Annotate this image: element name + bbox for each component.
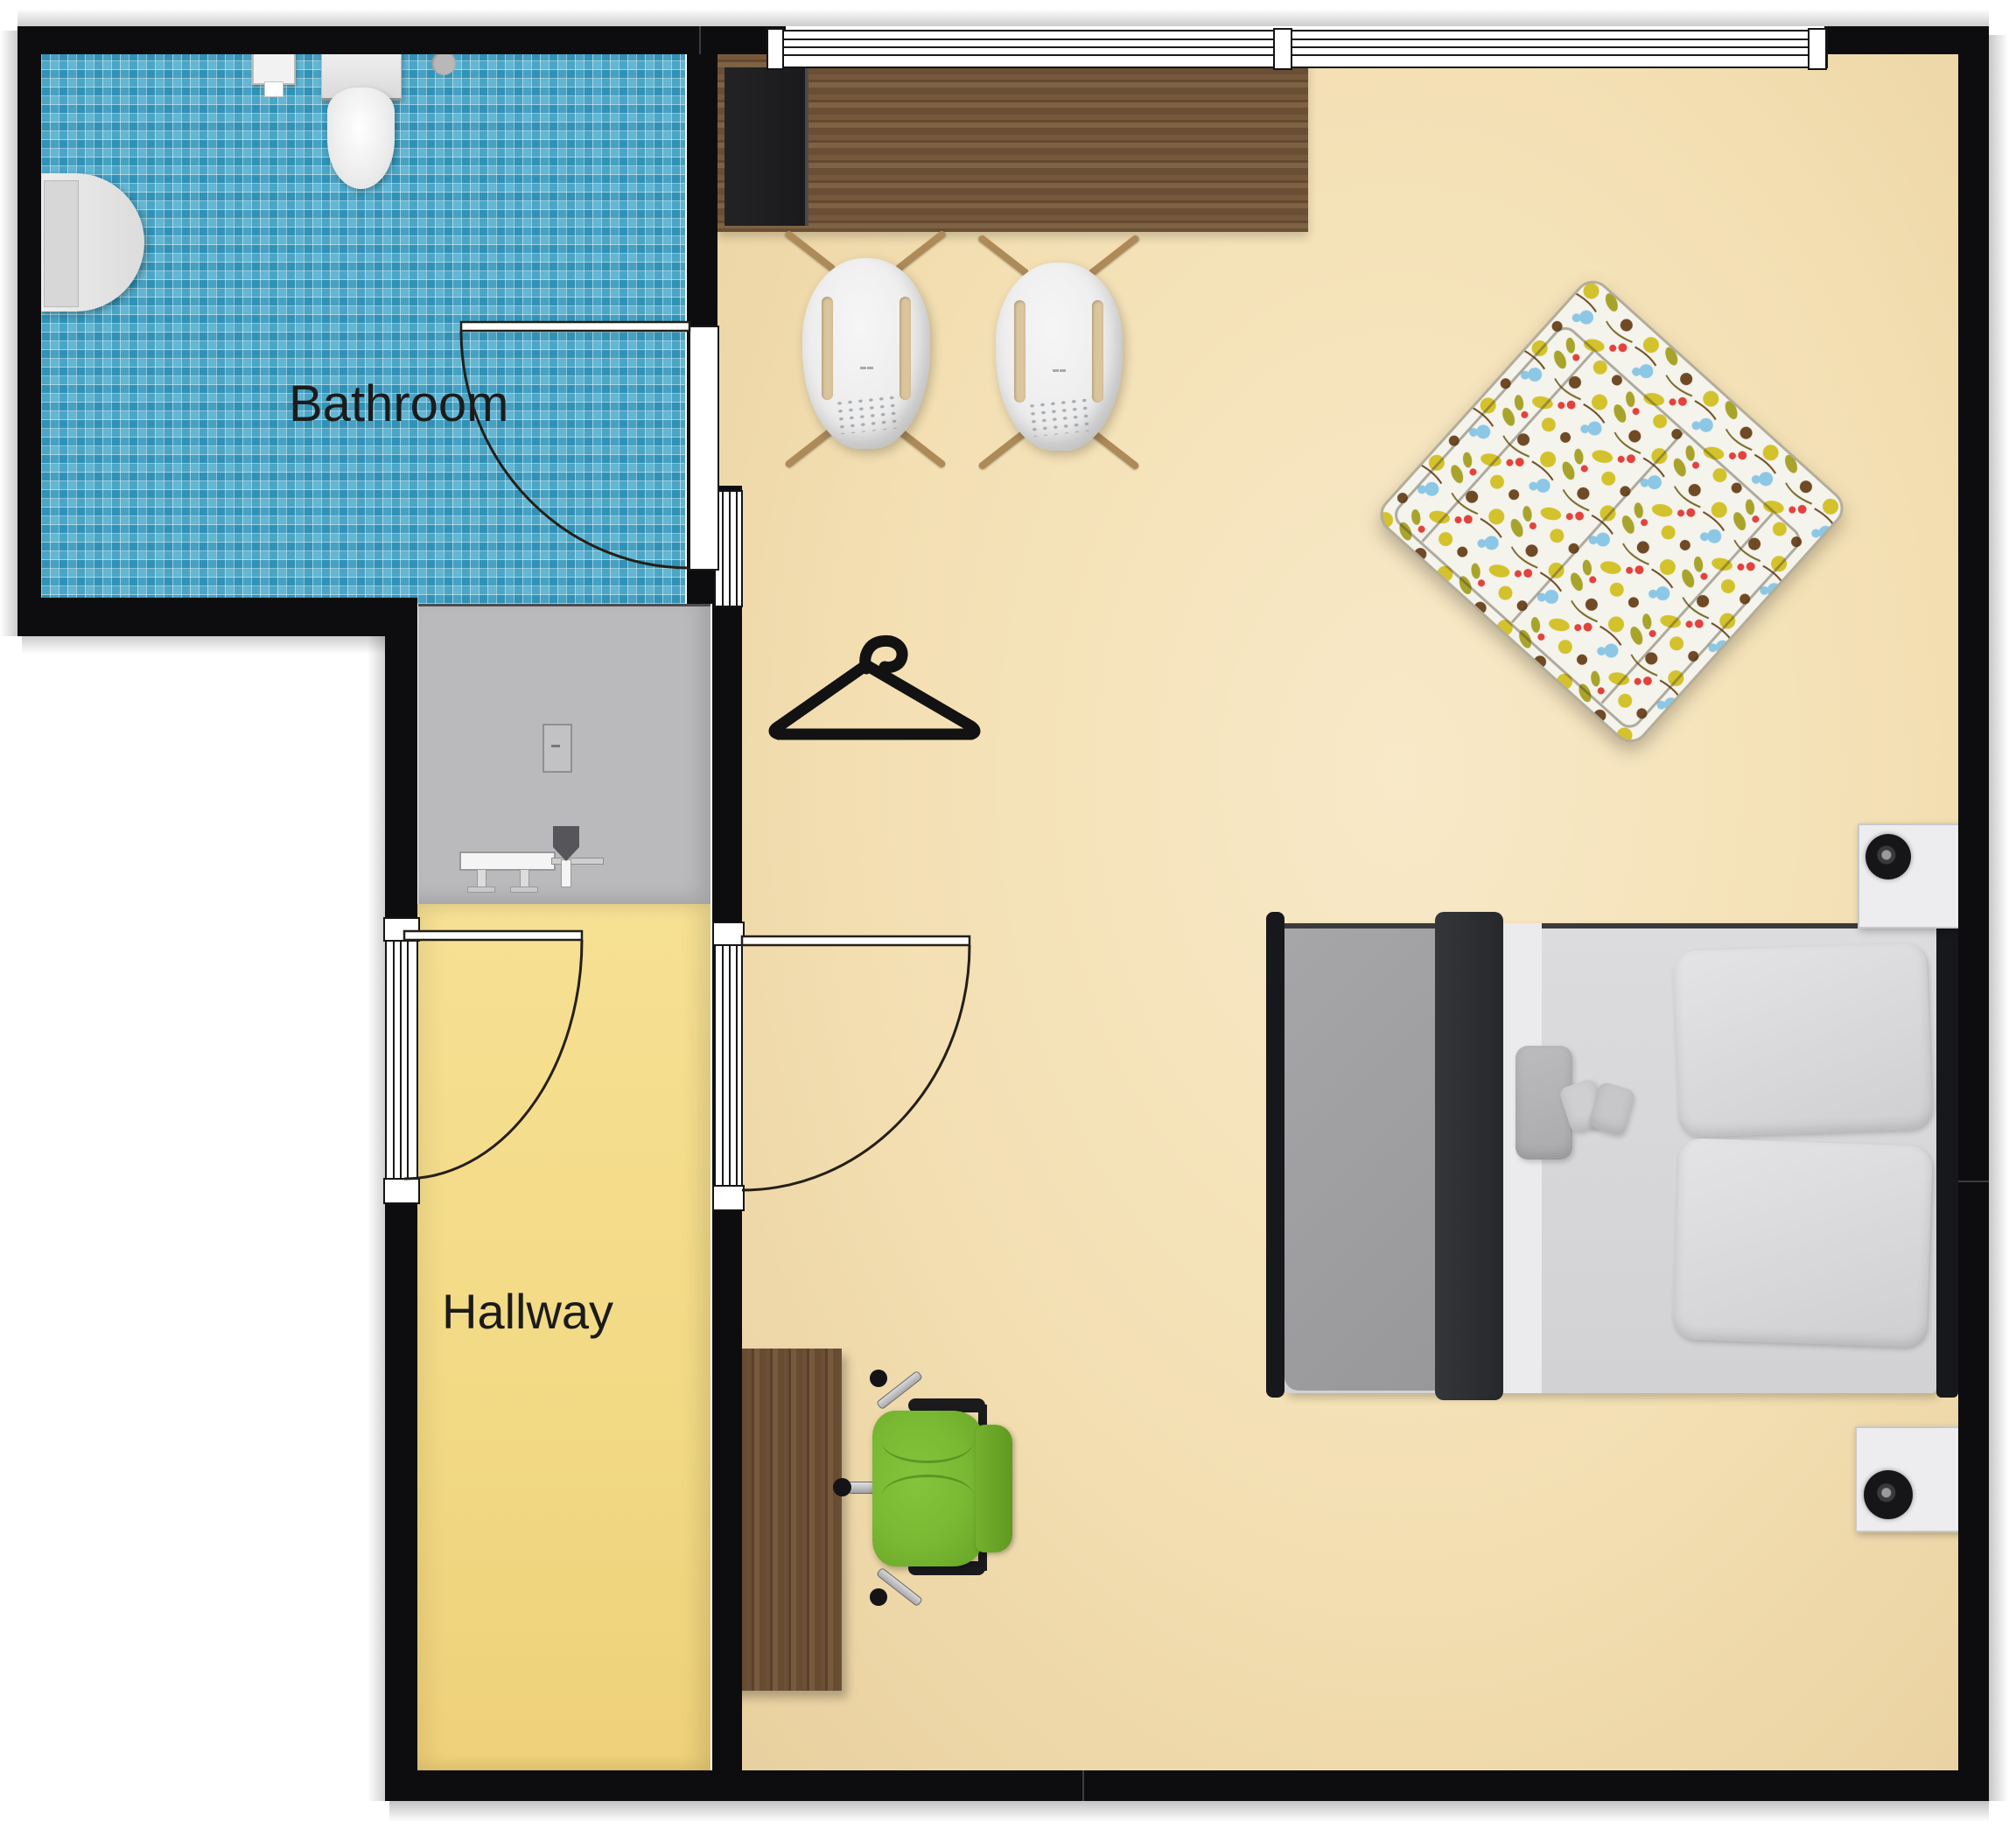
chair-seat-seam — [882, 1475, 973, 1516]
shower-control-panel — [542, 724, 572, 773]
door-opening-main — [714, 925, 743, 1211]
chair-piston-cap — [833, 1478, 851, 1496]
bed-pillow-large — [1672, 1138, 1933, 1348]
chair-caster — [870, 1370, 887, 1387]
bed-blanket — [1284, 929, 1442, 1391]
chair-speckle-pattern — [1026, 396, 1095, 438]
shower-hose — [561, 859, 571, 887]
toilet-paper-holder-icon — [252, 50, 296, 85]
tv-cabinet — [724, 67, 808, 226]
table-lamp-icon — [1865, 834, 1911, 879]
exterior-shadow — [1989, 35, 2008, 1801]
window-hallway — [385, 921, 418, 1204]
wall-bathroom-left — [17, 26, 41, 636]
clothes-hanger-icon — [763, 628, 987, 744]
green-office-chair — [831, 1370, 1019, 1606]
floor-drain-icon — [431, 51, 456, 75]
chair-armrest-slot — [1014, 300, 1025, 403]
shower-control-dash — [551, 745, 560, 747]
wall-bathroom-bottom — [17, 598, 417, 636]
desk — [729, 1349, 842, 1691]
chair-backrest — [976, 1425, 1012, 1552]
wall-seam — [1958, 1181, 1989, 1182]
chair-stitch — [1053, 369, 1059, 372]
wall-right — [1958, 26, 1989, 1801]
chair-armrest-slot — [1092, 300, 1103, 403]
toilet-paper-flap — [264, 81, 283, 97]
chair-speckle-pattern — [834, 393, 902, 435]
table-lamp-icon — [1864, 1470, 1913, 1519]
window-top-1 — [770, 30, 1278, 68]
window-mullion — [1273, 28, 1292, 70]
wall-bottom — [385, 1770, 1989, 1801]
chair-armrest-slot — [822, 297, 833, 400]
bed-footboard-bar — [1266, 912, 1284, 1398]
chair-stitch — [860, 367, 866, 369]
bed-pillow-large — [1672, 943, 1932, 1138]
bed-duvet-fold — [1435, 912, 1503, 1400]
window-end-cap — [766, 28, 784, 70]
toilet-bowl — [327, 88, 395, 189]
wash-basin-shelf — [44, 180, 79, 307]
window-end-cap — [383, 917, 420, 942]
room-label-hallway: Hallway — [442, 1283, 613, 1340]
double-bed — [1266, 912, 1958, 1400]
door-cap — [712, 922, 745, 946]
chair-seat-seam — [882, 1422, 973, 1463]
door-cap — [712, 1185, 745, 1211]
chair-caster — [870, 1588, 887, 1606]
bed-headboard-bar — [1936, 917, 1958, 1398]
wall-top-left — [17, 26, 786, 54]
chair-armrest-slot — [899, 297, 911, 400]
shower-bench-foot — [510, 886, 538, 893]
shower-rail — [551, 858, 604, 865]
shower-bench — [459, 851, 556, 871]
shower-bench-foot — [467, 886, 495, 893]
shell-chair-1 — [802, 258, 930, 449]
door-opening-bathroom — [689, 326, 719, 571]
exterior-shadow — [367, 613, 385, 1801]
exterior-shadow — [22, 636, 417, 654]
wall-seam — [699, 26, 701, 54]
wall-seam — [1082, 1770, 1084, 1801]
room-label-bathroom: Bathroom — [289, 375, 508, 433]
window-top-2 — [1288, 30, 1828, 68]
shell-chair-2 — [996, 263, 1123, 451]
window-end-cap — [383, 1178, 420, 1204]
exterior-shadow — [17, 9, 1989, 26]
floor-plan: Bathroom Hallway — [0, 0, 2016, 1836]
exterior-shadow — [389, 1801, 1989, 1822]
exterior-shadow — [0, 31, 17, 636]
window-end-cap — [1808, 28, 1827, 70]
